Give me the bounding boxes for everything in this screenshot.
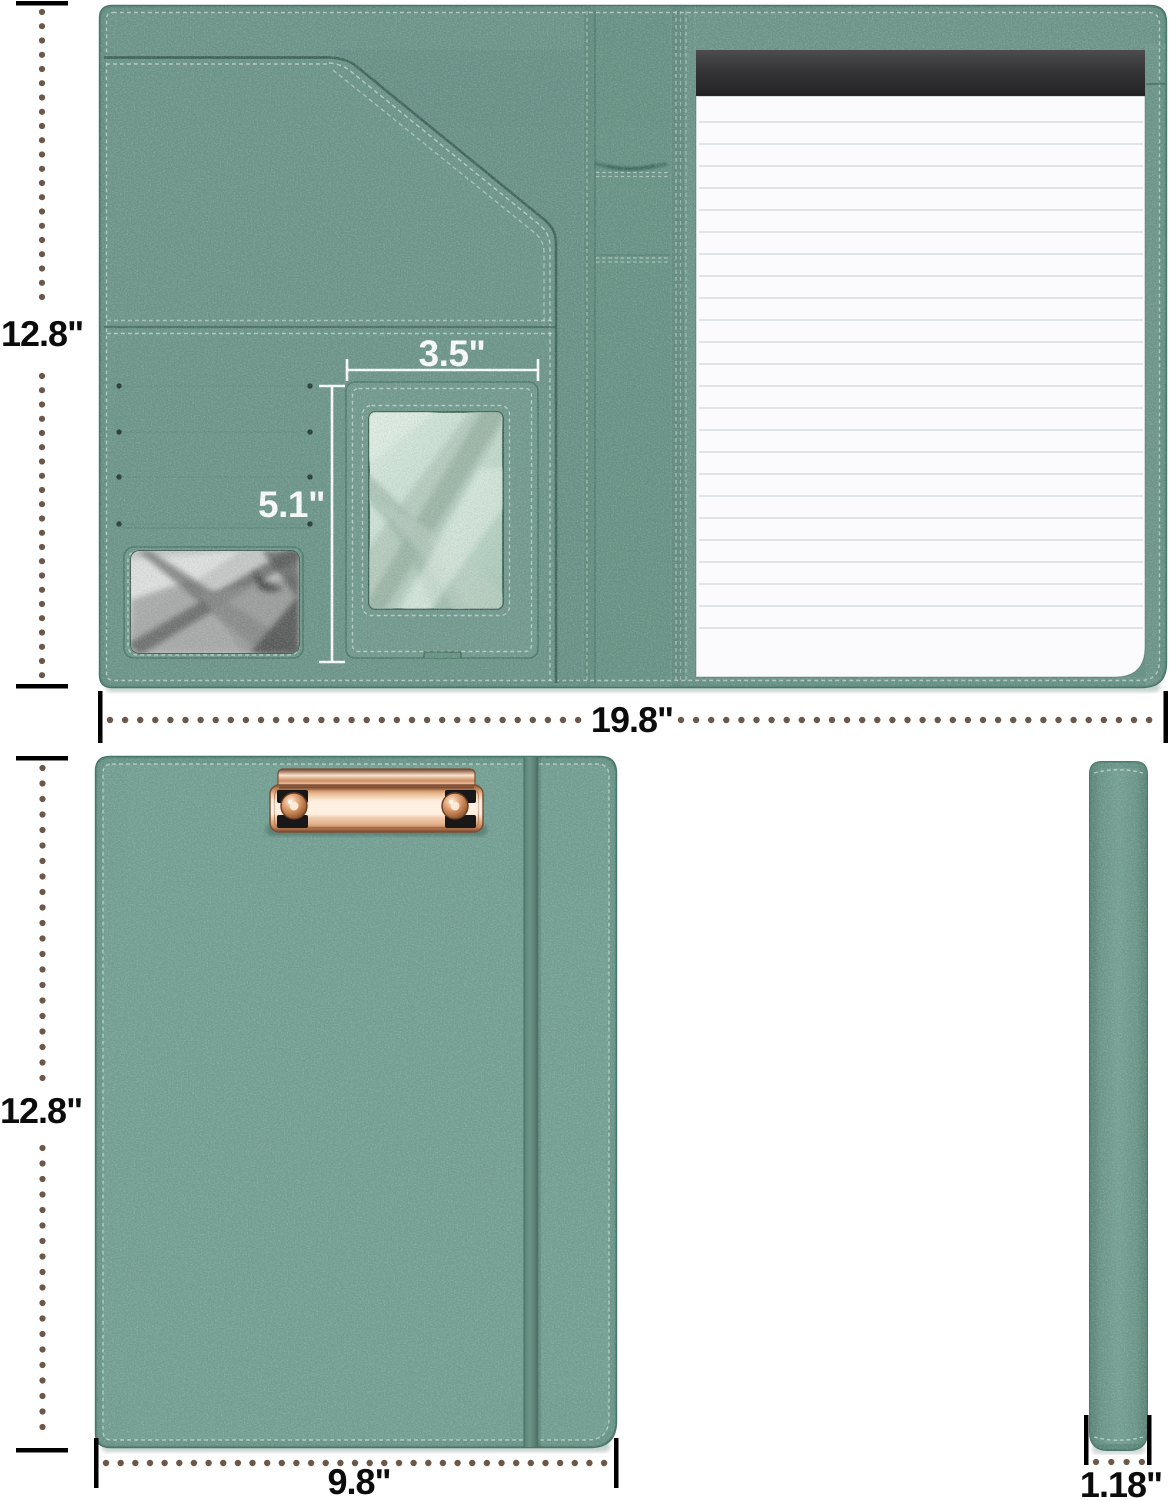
svg-text:9.8": 9.8"	[327, 1461, 390, 1500]
svg-text:1.18": 1.18"	[1080, 1464, 1162, 1500]
svg-text:19.8": 19.8"	[591, 699, 673, 740]
svg-text:12.8": 12.8"	[1, 313, 83, 354]
svg-text:12.8": 12.8"	[0, 1090, 82, 1131]
